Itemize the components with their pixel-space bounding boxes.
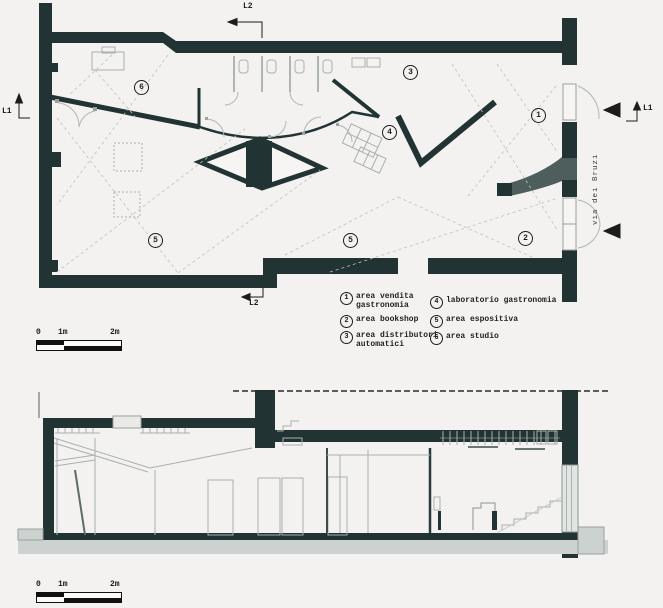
plan-walls xyxy=(39,3,577,302)
marker-l1-right-label: L1 xyxy=(643,105,653,113)
scale-tick: 1m xyxy=(58,329,68,337)
scale-tick: 0 xyxy=(36,581,41,589)
legend-item-3: 3 area distributori automatici xyxy=(340,331,440,350)
legend-num-4: 4 xyxy=(430,296,443,309)
scale-bar-section: 0 1m 2m xyxy=(36,581,156,605)
legend-item-2: 2 area bookshop xyxy=(340,315,440,328)
plan-furniture xyxy=(92,47,386,217)
room-label-5b: 5 xyxy=(343,233,358,248)
legend-label-2: area bookshop xyxy=(356,315,440,324)
marker-l2-top-label: L2 xyxy=(243,3,253,11)
room-label-5a: 5 xyxy=(148,233,163,248)
scale-bar-graphic xyxy=(36,340,122,351)
legend-item-4: 4 laboratorio gastronomia xyxy=(430,296,572,309)
room-label-4: 4 xyxy=(382,125,397,140)
scale-bar-plan: 0 1m 2m xyxy=(36,329,156,353)
plan-doors xyxy=(55,84,600,250)
legend-item-5: 5 area espositiva xyxy=(430,315,572,328)
legend-label-6: area studio xyxy=(446,332,572,341)
legend-item-1: 1 area vendita gastronomia xyxy=(340,292,440,311)
room-label-2: 2 xyxy=(518,231,533,246)
scale-tick: 0 xyxy=(36,329,41,337)
legend-num-5: 5 xyxy=(430,315,443,328)
scale-tick: 1m xyxy=(58,581,68,589)
room-label-1: 1 xyxy=(531,108,546,123)
street-name-label: via dei Bruzi xyxy=(592,141,600,225)
legend-num-6: 6 xyxy=(430,332,443,345)
plan-wall-opening xyxy=(398,258,428,274)
architectural-drawing-page: 6 3 4 1 5 5 2 L1 L2 L2 L1 via dei Bruzi … xyxy=(0,0,663,608)
legend-label-1: area vendita gastronomia xyxy=(356,292,440,311)
plan-toilet-stalls xyxy=(234,56,332,92)
scale-tick: 2m xyxy=(110,329,120,337)
legend-label-3: area distributori automatici xyxy=(356,331,440,350)
plan-partitions xyxy=(50,80,495,188)
section-ground xyxy=(18,391,610,554)
section-skylight xyxy=(113,416,141,428)
scale-bar-graphic xyxy=(36,592,122,603)
legend-num-1: 1 xyxy=(340,292,353,305)
legend-item-6: 6 area studio xyxy=(430,332,572,345)
marker-l2-bottom-label: L2 xyxy=(249,300,259,308)
section-glass-wall xyxy=(562,465,578,532)
legend-num-2: 2 xyxy=(340,315,353,328)
marker-l1-left-label: L1 xyxy=(2,108,12,116)
scale-tick: 2m xyxy=(110,581,120,589)
room-label-6: 6 xyxy=(134,80,149,95)
legend-label-5: area espositiva xyxy=(446,315,572,324)
room-label-3: 3 xyxy=(403,65,418,80)
legend-label-4: laboratorio gastronomia xyxy=(446,296,572,305)
legend-num-3: 3 xyxy=(340,331,353,344)
